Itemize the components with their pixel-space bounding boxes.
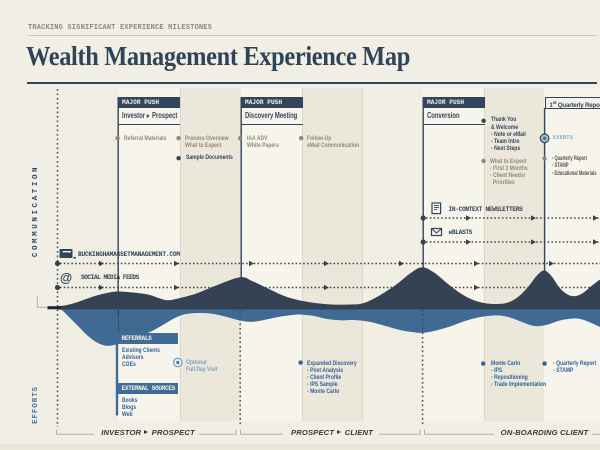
svg-text:@: @ — [60, 271, 72, 285]
